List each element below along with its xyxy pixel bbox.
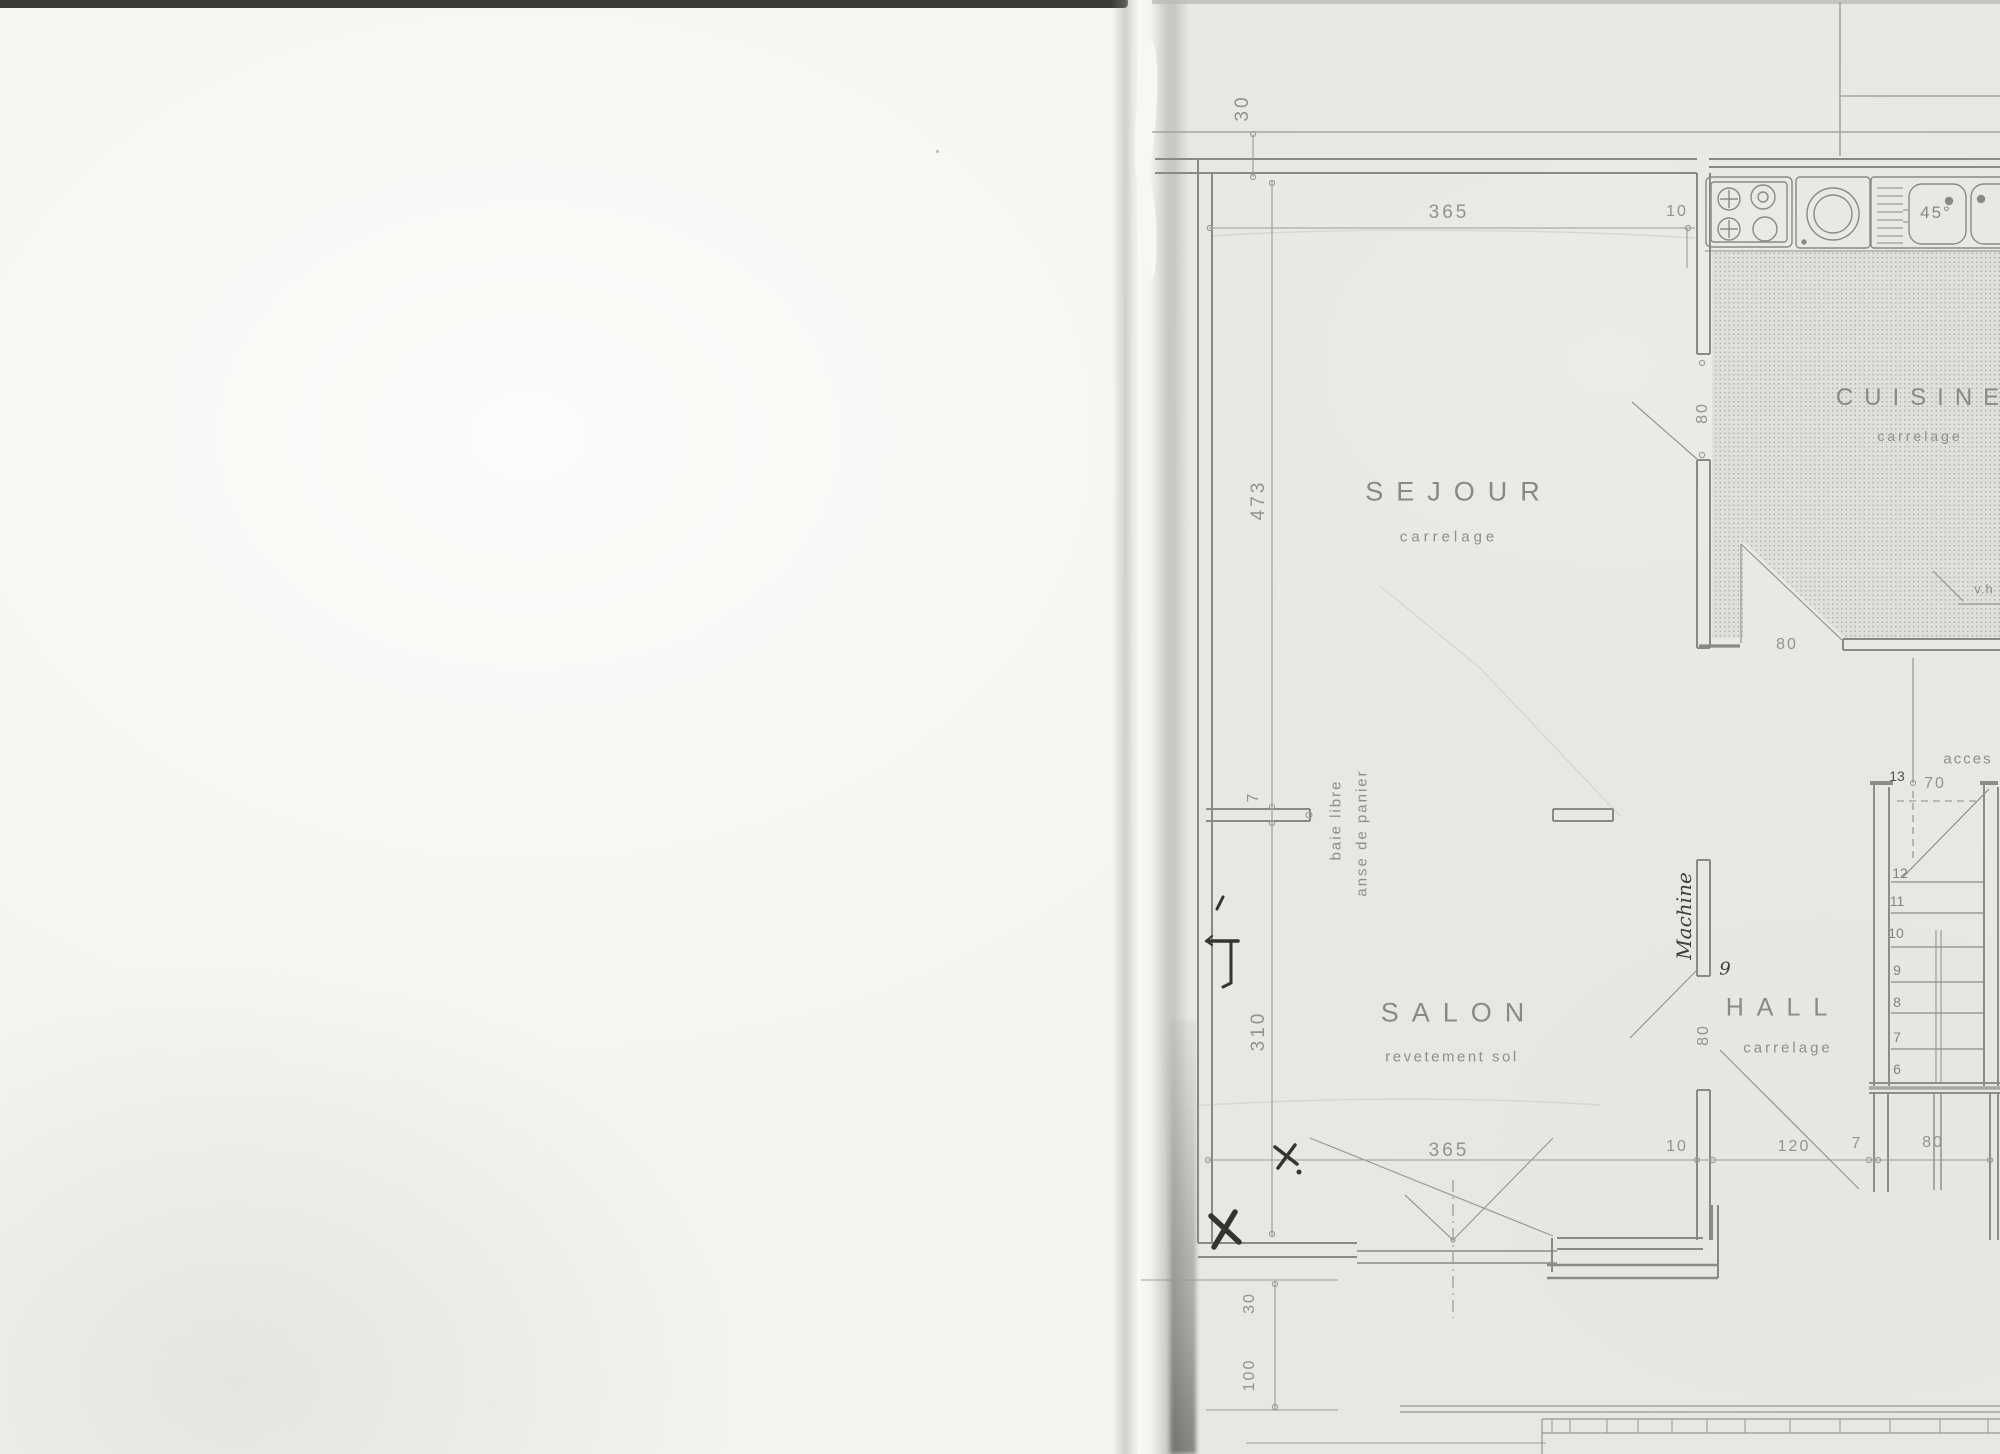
dim-kitchen-door-80: 80 bbox=[1694, 402, 1712, 424]
pen-note-machine: Machine bbox=[1672, 872, 1696, 960]
dim-bottom-365: 365 bbox=[1429, 1140, 1470, 1162]
kitchen-fixtures bbox=[1705, 177, 2000, 251]
room-label-cuisine: CUISINE bbox=[1836, 384, 2000, 412]
dim-kitchen-back-80: 80 bbox=[1776, 636, 1798, 654]
dim-top-365: 365 bbox=[1429, 202, 1470, 224]
dim-bottom-120: 120 bbox=[1778, 1138, 1811, 1156]
note-acces: acces bbox=[1943, 751, 1992, 768]
room-finish-sejour: carrelage bbox=[1400, 529, 1499, 546]
dim-left-473: 473 bbox=[1248, 480, 1270, 521]
pen-marks bbox=[1206, 897, 1302, 1247]
dim-hall-door-80: 80 bbox=[1695, 1024, 1713, 1046]
note-baie-libre: baie libre bbox=[1328, 780, 1345, 861]
site-lines bbox=[1152, 2, 2000, 156]
floor-plan-drawing bbox=[0, 0, 2000, 1454]
pen-note-9: 9 bbox=[1719, 959, 1730, 980]
dim-bottom-7: 7 bbox=[1852, 1135, 1863, 1153]
dim-left-7: 7 bbox=[1245, 792, 1263, 803]
dim-bottom-10: 10 bbox=[1666, 1138, 1688, 1156]
stair-step-12: 12 bbox=[1892, 865, 1908, 881]
dim-sink-45: 45° bbox=[1920, 203, 1952, 223]
stair-step-13: 13 bbox=[1889, 768, 1905, 784]
kitchen-floor-stipple bbox=[1712, 252, 2000, 638]
room-label-sejour: SEJOUR bbox=[1365, 477, 1553, 508]
stair-step-10: 10 bbox=[1888, 925, 1904, 941]
note-vh: v.h bbox=[1974, 582, 1993, 597]
dim-left-bottom-30: 30 bbox=[1241, 1292, 1259, 1314]
room-finish-hall: carrelage bbox=[1743, 1040, 1833, 1057]
staircase bbox=[1869, 658, 2000, 1240]
dim-bottom-80: 80 bbox=[1922, 1134, 1944, 1152]
room-finish-cuisine: carrelage bbox=[1877, 428, 1962, 444]
room-finish-salon: revetement sol bbox=[1385, 1049, 1518, 1066]
note-anse-de-panier: anse de panier bbox=[1354, 769, 1371, 896]
dim-left-310: 310 bbox=[1248, 1011, 1270, 1052]
dim-top-30: 30 bbox=[1232, 94, 1254, 121]
bottom-terrace-lines bbox=[1246, 1406, 2000, 1454]
stair-step-6: 6 bbox=[1893, 1061, 1901, 1077]
stair-step-8: 8 bbox=[1893, 994, 1901, 1010]
room-label-hall: HALL bbox=[1726, 994, 1841, 1023]
scanned-floor-plan-page: SEJOUR carrelage SALON revetement sol HA… bbox=[0, 0, 2000, 1454]
paper-creases bbox=[1190, 230, 1695, 1106]
dim-stairs-70: 70 bbox=[1924, 775, 1946, 793]
dim-left-bottom-100: 100 bbox=[1241, 1359, 1259, 1392]
room-label-salon: SALON bbox=[1381, 998, 1538, 1029]
window-axis-symbols bbox=[1310, 1138, 1553, 1318]
stair-step-7: 7 bbox=[1893, 1029, 1901, 1045]
dim-top-10: 10 bbox=[1666, 203, 1688, 221]
stair-step-9: 9 bbox=[1893, 962, 1901, 978]
stair-step-11: 11 bbox=[1890, 893, 1905, 909]
